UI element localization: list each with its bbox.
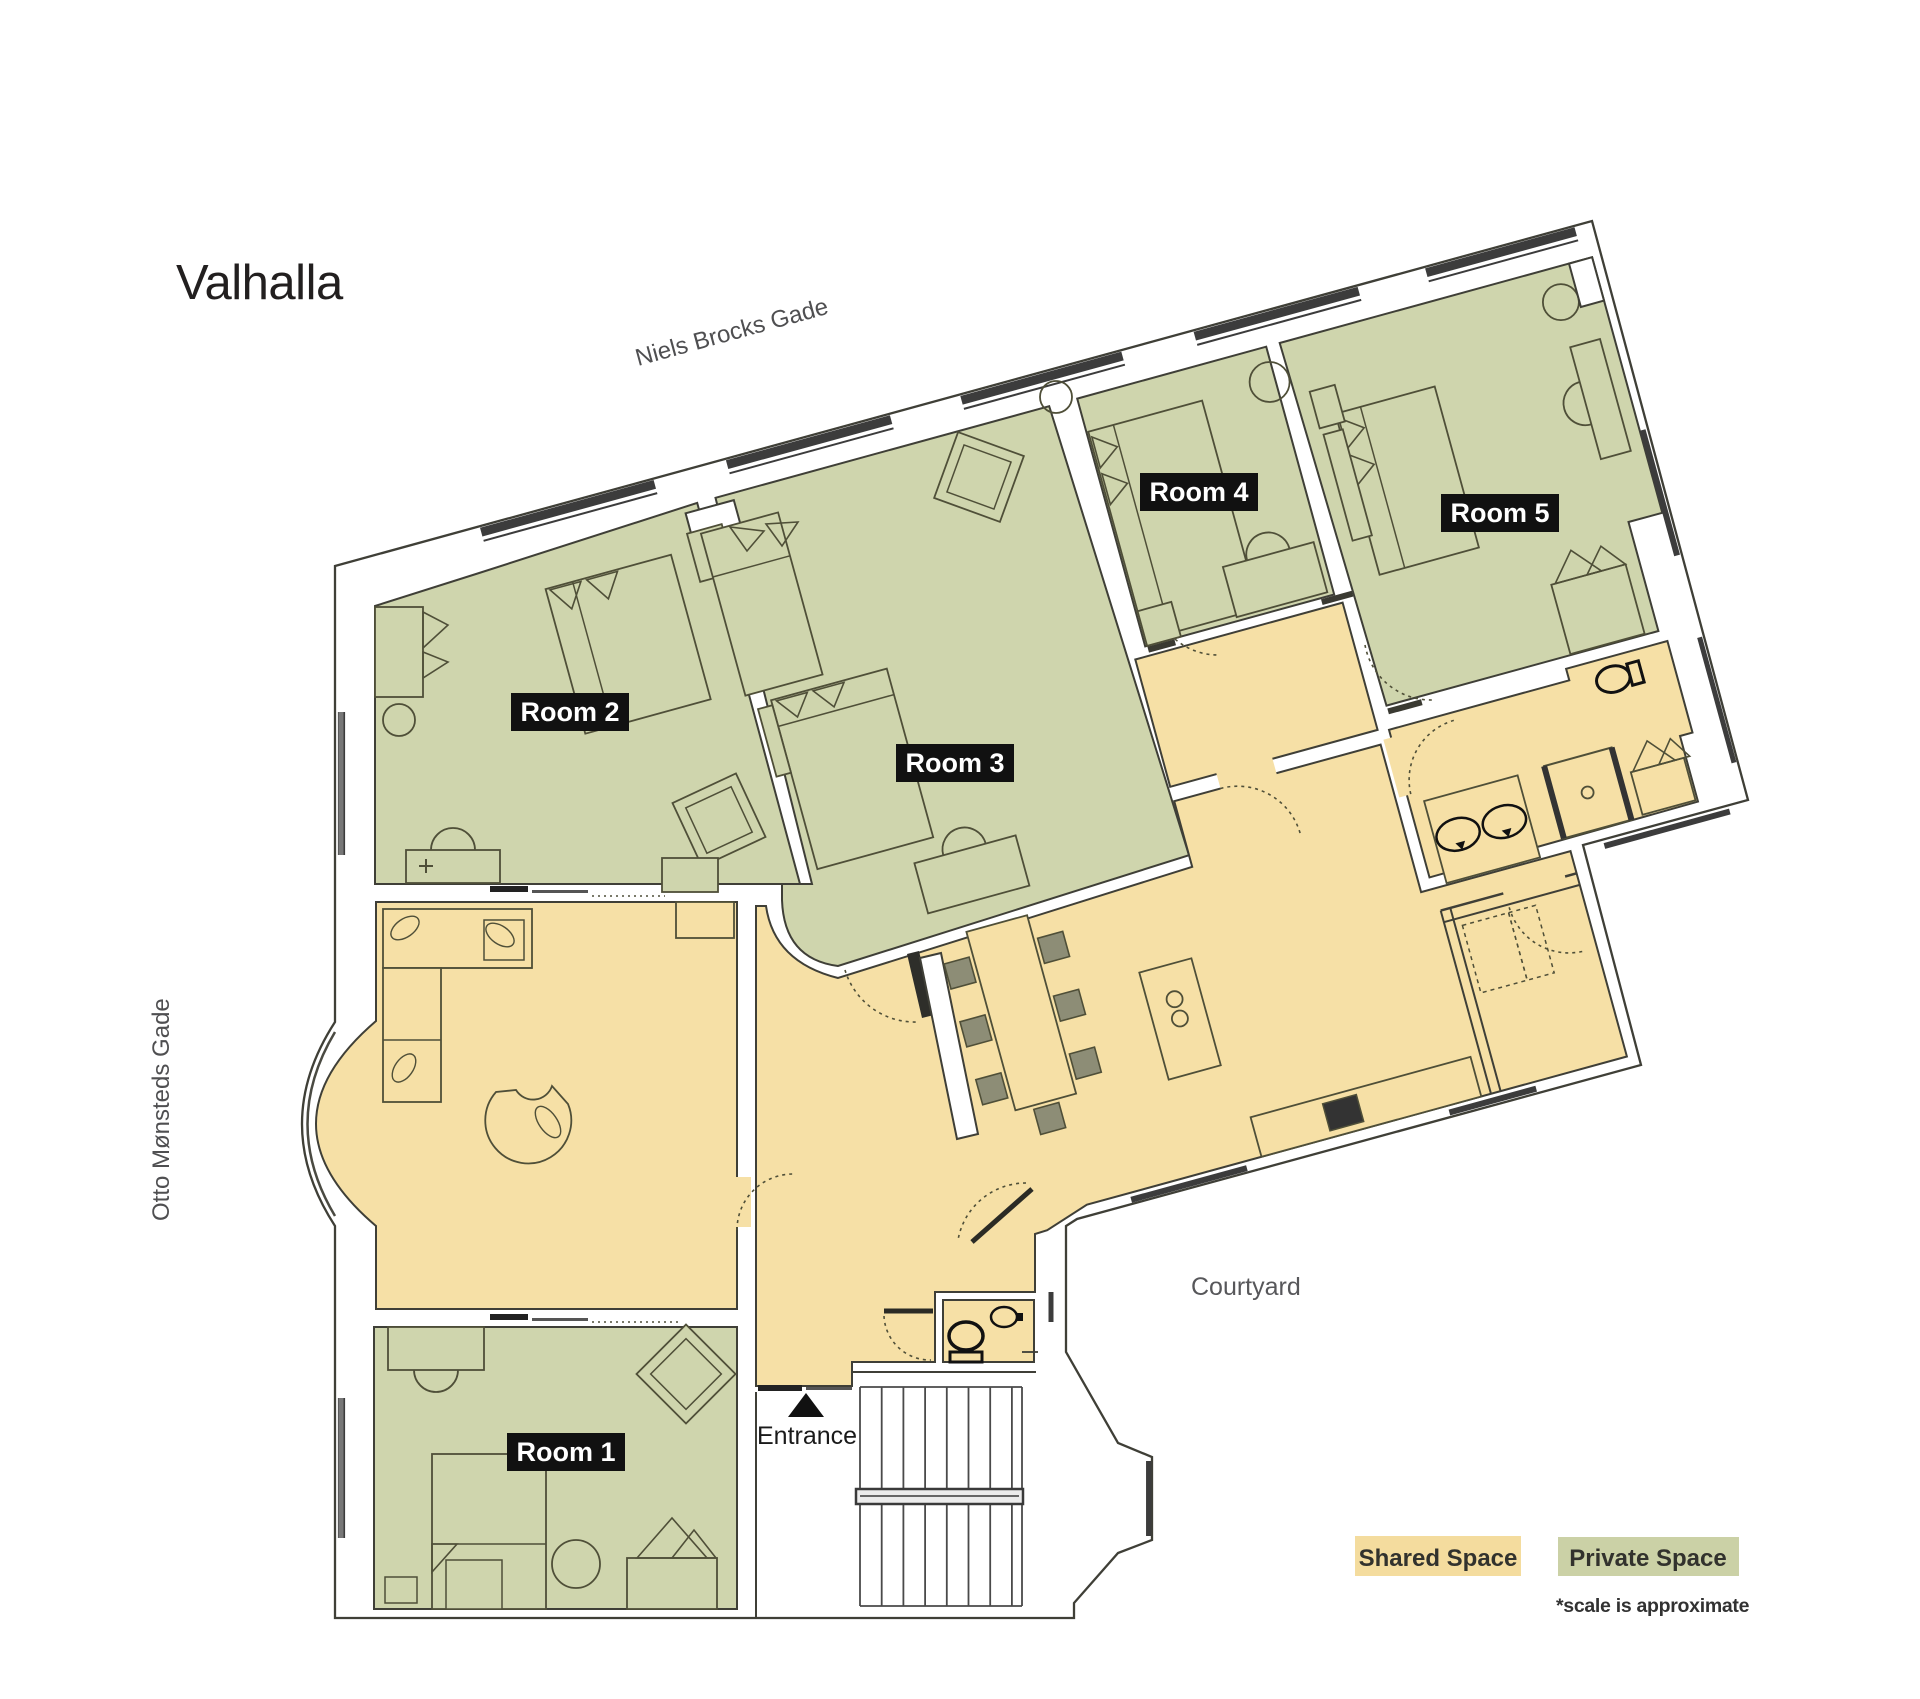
svg-text:*scale is approximate: *scale is approximate bbox=[1556, 1595, 1750, 1617]
svg-text:Room 2: Room 2 bbox=[520, 697, 619, 727]
svg-text:Room 3: Room 3 bbox=[905, 748, 1004, 778]
svg-text:Valhalla: Valhalla bbox=[176, 256, 344, 310]
svg-text:Entrance: Entrance bbox=[757, 1422, 857, 1450]
svg-text:Room 4: Room 4 bbox=[1149, 477, 1248, 507]
svg-text:Otto Mønsteds Gade: Otto Mønsteds Gade bbox=[148, 998, 175, 1221]
svg-text:Private Space: Private Space bbox=[1569, 1545, 1726, 1572]
svg-text:Shared Space: Shared Space bbox=[1359, 1545, 1518, 1572]
svg-text:Courtyard: Courtyard bbox=[1191, 1273, 1301, 1301]
svg-text:Room 5: Room 5 bbox=[1450, 498, 1549, 528]
svg-text:Room 1: Room 1 bbox=[516, 1437, 615, 1467]
